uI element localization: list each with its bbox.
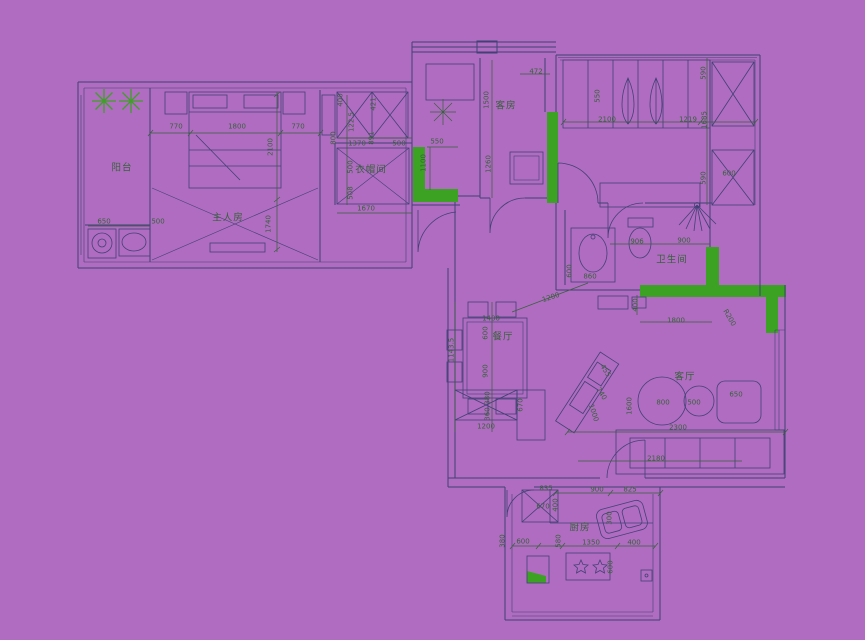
- dimension-label: 670: [536, 504, 549, 511]
- dimension-label: 1370: [348, 141, 366, 148]
- dimension-label: 900: [483, 364, 490, 377]
- dimension-label: 500: [348, 160, 355, 173]
- floor-plan: 阳台主人房衣帽间客房卫生间餐厅客厅厨房770180077021001740650…: [0, 0, 865, 640]
- dimension-label: 400: [553, 498, 560, 511]
- dimension-label: 860: [583, 274, 596, 281]
- dimension-label: 600: [608, 560, 615, 573]
- dimension-label: 600: [483, 326, 490, 339]
- dimension-label: 670: [518, 398, 525, 411]
- label-layer: 阳台主人房衣帽间客房卫生间餐厅客厅厨房770180077021001740650…: [0, 0, 865, 640]
- room-label-master-bedroom: 主人房: [212, 213, 244, 223]
- dimension-label: 891: [369, 131, 376, 144]
- dimension-label: 770: [169, 124, 182, 131]
- dimension-label: 650: [729, 392, 742, 399]
- dimension-label: 590: [701, 171, 708, 184]
- dimension-label: 1200: [477, 424, 495, 431]
- dimension-label: 825: [623, 487, 636, 494]
- dimension-label: 600: [722, 171, 735, 178]
- dimension-label: 800: [656, 400, 669, 407]
- dimension-label: 1219: [679, 117, 697, 124]
- dimension-label: 455: [598, 363, 611, 378]
- dimension-label: 360: [485, 407, 492, 420]
- dimension-label: 2180: [647, 456, 665, 463]
- dimension-label: 500: [392, 141, 405, 148]
- dimension-label: 650: [97, 219, 110, 226]
- dimension-label: 380: [500, 534, 507, 547]
- dimension-label: 1670: [357, 206, 375, 213]
- dimension-label: 421: [371, 97, 378, 110]
- dimension-label: 500: [151, 219, 164, 226]
- dimension-label: 600: [567, 264, 574, 277]
- dimension-label: 550: [595, 89, 602, 102]
- dimension-label: 1500: [484, 91, 491, 109]
- dimension-label: 600: [516, 539, 529, 546]
- dimension-label: 2300: [669, 425, 687, 432]
- dimension-label: 400: [338, 93, 345, 106]
- dimension-label: 1100: [421, 154, 428, 172]
- room-label-balcony: 阳台: [111, 163, 132, 173]
- dimension-label: 400: [627, 540, 640, 547]
- dimension-label: 1400: [482, 316, 500, 323]
- dimension-label: 590: [701, 66, 708, 79]
- dimension-label: 550: [430, 139, 443, 146]
- room-label-kitchen: 厨房: [569, 523, 590, 533]
- dimension-label: 1740: [266, 215, 273, 233]
- dimension-label: 2100: [268, 138, 275, 156]
- room-label-guest-room: 客房: [495, 101, 516, 111]
- dimension-label: 900: [677, 238, 690, 245]
- dimension-label: 400: [633, 298, 640, 311]
- dimension-label: R200: [721, 308, 736, 327]
- dimension-label: 122.5: [349, 112, 356, 132]
- dimension-label: 1000: [587, 403, 599, 422]
- dimension-label: 1260: [486, 155, 493, 173]
- room-label-dining-room: 餐厅: [492, 332, 513, 342]
- dimension-label: 1143.5: [449, 338, 456, 363]
- room-label-cloakroom: 衣帽间: [355, 165, 387, 175]
- dimension-label: 508: [348, 186, 355, 199]
- dimension-label: 380: [485, 391, 492, 404]
- dimension-label: 1200: [541, 292, 560, 304]
- room-label-living-room: 客厅: [674, 372, 695, 382]
- room-label-bathroom: 卫生间: [656, 255, 688, 265]
- dimension-label: 300: [607, 511, 614, 524]
- dimension-label: 1350: [582, 540, 600, 547]
- dimension-label: 472: [529, 69, 542, 76]
- dimension-label: 1800: [667, 318, 685, 325]
- dimension-label: 800: [331, 131, 338, 144]
- dimension-label: 906: [630, 239, 643, 246]
- dimension-label: 1685: [702, 111, 709, 129]
- dimension-label: 835: [539, 486, 552, 493]
- dimension-label: 900: [590, 487, 603, 494]
- dimension-label: 2100: [598, 117, 616, 124]
- dimension-label: 1600: [627, 397, 634, 415]
- dimension-label: 770: [291, 124, 304, 131]
- dimension-label: 580: [556, 534, 563, 547]
- dimension-label: 1800: [228, 124, 246, 131]
- dimension-label: 500: [687, 400, 700, 407]
- dimension-label: 740: [594, 386, 607, 401]
